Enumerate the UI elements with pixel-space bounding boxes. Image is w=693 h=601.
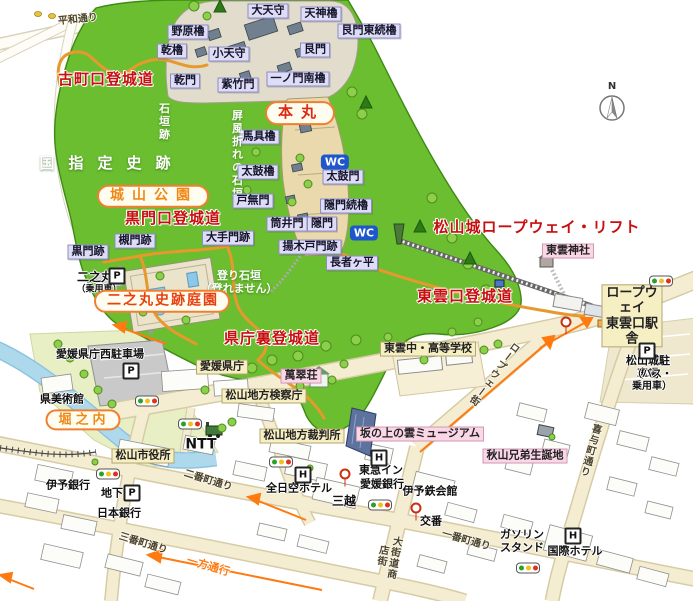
castle-ushitoramon: 艮門 <box>300 43 330 58</box>
castle-inuimon: 乾門 <box>170 74 200 89</box>
castle-agekidomon-ato: 揚木戸門跡 <box>279 240 342 255</box>
label-matsuyama-saibansho: 松山地方裁判所 <box>260 429 345 444</box>
label-shinonome-school: 東雲中・高等学校 <box>380 342 476 357</box>
area-ninomaru-shiseki-teien: 二之丸史跡庭園 <box>94 290 230 313</box>
stop-marker-icon <box>411 503 422 514</box>
castle-tonashimon: 戸無門 <box>233 194 274 209</box>
area-honmaru: 本丸 <box>265 101 335 125</box>
label-sakanoue-no-kumo-museum: 坂の上の雲ミュージアム <box>356 427 484 442</box>
label-layer: 平和通り古町口登城道野原櫓乾櫓大天守天神櫓艮門東続櫓小天守艮門乾門紫竹門一ノ門南… <box>0 0 693 601</box>
compass-north-label: N <box>597 82 627 92</box>
label-matsuyama-shiyakusho: 松山市役所 <box>112 449 175 464</box>
label-bansuiso: 萬翠荘 <box>281 369 322 384</box>
label-chojagadaira: 長者ヶ平 <box>326 256 378 271</box>
castle-otemon-ato: 大手門跡 <box>202 231 254 246</box>
label-matsuyamajo-parking-note: （バス・乗用車） <box>632 369 673 393</box>
traffic-light-icon <box>135 396 159 407</box>
castle-inui-yagura: 乾櫓 <box>157 44 187 59</box>
hotel-icon: H <box>565 528 582 545</box>
label-ippo-tsuko: 一方通行 <box>185 555 231 580</box>
stop-marker-icon <box>561 317 572 328</box>
road-label-sanbancho-dori: 三番町通り <box>117 531 168 557</box>
road-label-okaido-shotengai: 大街道商店街 <box>371 532 402 580</box>
parking-icon: P <box>124 485 141 502</box>
road-label-ichibancho-dori: 一番町通り <box>440 528 491 553</box>
label-ropeway-shinonomeguchi-station: ロープウェイ 東雲口駅舎 <box>602 284 663 347</box>
label-kencho-nishi-parking: 愛媛県庁西駐車場 <box>56 349 144 362</box>
stop-marker-icon <box>340 469 351 480</box>
castle-shichikumon: 紫竹門 <box>218 78 259 93</box>
castle-kuromon-ato: 黒門跡 <box>68 245 109 260</box>
traffic-light-icon <box>516 563 540 574</box>
label-chika: 地下 <box>101 488 123 501</box>
route-matsuyamajo-ropeway-lift: 松山城ロープウェイ・リフト <box>433 219 640 237</box>
road-label-heiwa-dori: 平和通り <box>57 12 98 28</box>
label-kuni-shitei-shiseki: 国指定史跡 <box>39 155 184 173</box>
label-ken-bijutsukan: 県美術館 <box>40 394 84 407</box>
castle-taiko-yagura: 太鼓櫓 <box>238 165 279 180</box>
traffic-light-icon <box>96 469 120 480</box>
parking-icon: P <box>639 343 656 360</box>
traffic-light-icon <box>368 500 392 511</box>
compass-needle-icon <box>597 93 627 123</box>
area-horinouchi: 堀之内 <box>45 409 120 430</box>
label-ntt: NTT <box>185 437 216 454</box>
label-byobuore-no-ishigaki: 屏風折れの石垣 <box>230 110 243 201</box>
castle-taikomon: 太鼓門 <box>323 170 364 185</box>
traffic-light-icon <box>178 419 202 430</box>
wc-icon: WC <box>350 226 378 241</box>
label-shinonome-jinja: 東雲神社 <box>542 244 594 259</box>
hotel-icon: H <box>371 450 388 467</box>
road-label-nibancho-dori: 二番町通り <box>182 468 233 494</box>
label-iyo-ginko: 伊予銀行 <box>46 480 90 493</box>
label-zennikku-hotel: 全日空ホテル <box>266 483 332 496</box>
castle-bagu-yagura: 馬具櫓 <box>239 130 280 145</box>
hotel-icon: H <box>295 467 312 484</box>
castle-tsukimon-ato: 槻門跡 <box>115 234 156 249</box>
label-akiyama-kyodai-birthplace: 秋山兄弟生誕地 <box>483 449 568 464</box>
label-kokusai-hotel: 国際ホテル <box>548 546 603 559</box>
label-ishigaki-ato: 石垣跡 <box>157 103 170 142</box>
label-iyotetsu-kaikan: 伊予鉄会館 <box>403 486 458 499</box>
castle-tenjin-yagura: 天神櫓 <box>301 7 342 22</box>
matsuyama-castle-area-map: 平和通り古町口登城道野原櫓乾櫓大天守天神櫓艮門東続櫓小天守艮門乾門紫竹門一ノ門南… <box>0 0 693 601</box>
castle-kotenshu: 小天守 <box>209 47 250 62</box>
label-mitsukoshi: 三越 <box>332 494 356 508</box>
castle-ushitoramon-higashi-tsuzuki-yagura: 艮門東続櫓 <box>338 24 401 39</box>
compass: N <box>597 82 627 127</box>
castle-ichinomon-minami-yagura: 一ノ門南櫓 <box>267 72 330 87</box>
castle-nohara-yagura: 野原櫓 <box>168 25 209 40</box>
traffic-light-icon <box>269 457 293 468</box>
castle-daitenshu: 大天守 <box>248 4 289 19</box>
label-gasoline-stand: ガソリン スタンド <box>500 529 544 555</box>
label-ehime-kencho: 愛媛県庁 <box>196 360 248 375</box>
road-label-kiyocho-dori: 喜与町通り <box>576 422 602 478</box>
route-komachiguchi-tojodo: 古町口登城道 <box>58 71 154 89</box>
label-ehime-ginko: 愛媛銀行 <box>360 479 404 492</box>
label-koban: 交番 <box>420 516 442 529</box>
area-shiroyama-koen: 城山公園 <box>97 185 209 208</box>
castle-tsutsuimon: 筒井門 <box>267 217 308 232</box>
parking-icon: P <box>123 363 140 380</box>
route-kencho-ura-tojodo: 県庁裏登城道 <box>224 330 320 348</box>
label-nippon-ginko: 日本銀行 <box>97 508 141 521</box>
wc-icon: WC <box>321 155 349 170</box>
traffic-light-icon <box>649 276 673 287</box>
label-matsuyama-kensatsucho: 松山地方検察庁 <box>222 389 307 404</box>
route-shinonomeguchi-tojodo: 東雲口登城道 <box>417 288 513 306</box>
castle-kakuremon-tsuzuki-yagura: 隠門続櫓 <box>320 199 372 214</box>
parking-icon: P <box>109 268 126 285</box>
castle-kakuremon: 隠門 <box>307 217 337 232</box>
route-kuromonguchi-tojodo: 黒門口登城道 <box>125 210 221 228</box>
